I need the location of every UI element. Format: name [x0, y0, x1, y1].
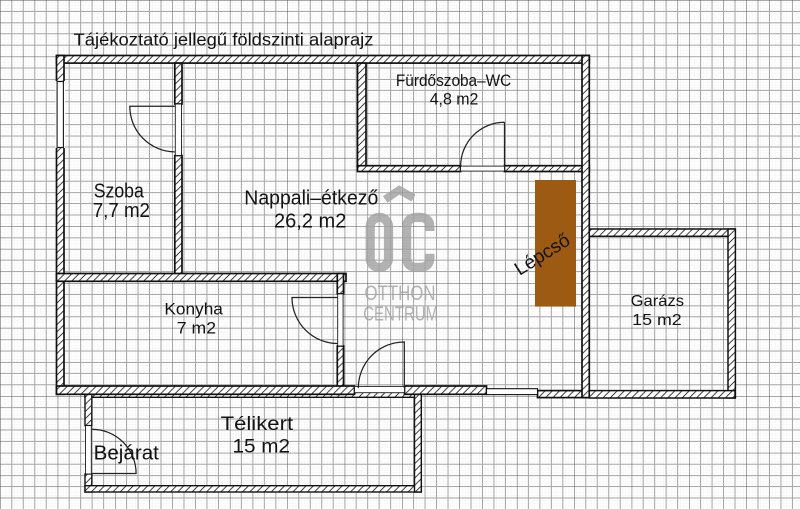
- svg-text:Bejárat: Bejárat: [94, 443, 160, 465]
- svg-text:26,2 m2: 26,2 m2: [274, 210, 346, 233]
- svg-text:15 m2: 15 m2: [233, 437, 291, 458]
- svg-text:Garázs: Garázs: [631, 293, 684, 310]
- svg-text:15 m2: 15 m2: [632, 312, 682, 329]
- svg-text:7,7 m2: 7,7 m2: [93, 200, 150, 222]
- svg-text:Nappali–étkező: Nappali–étkező: [244, 187, 378, 210]
- svg-text:4,8 m2: 4,8 m2: [430, 89, 479, 108]
- svg-text:Fürdőszoba–WC: Fürdőszoba–WC: [396, 71, 511, 90]
- svg-text:Télikert: Télikert: [221, 414, 294, 435]
- svg-text:Konyha: Konyha: [164, 299, 223, 318]
- svg-text:7 m2: 7 m2: [177, 319, 216, 338]
- svg-text:Tájékoztató jellegű földszinti: Tájékoztató jellegű földszinti alaprajz: [74, 29, 374, 49]
- svg-text:CENTRUM: CENTRUM: [363, 302, 438, 325]
